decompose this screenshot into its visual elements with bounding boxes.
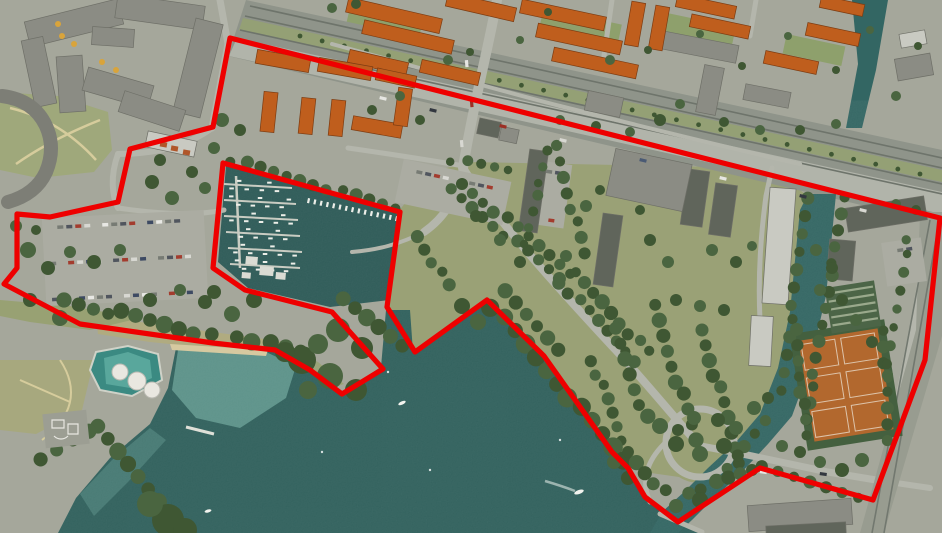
satellite-image [0, 0, 942, 533]
aerial-map [0, 0, 942, 533]
